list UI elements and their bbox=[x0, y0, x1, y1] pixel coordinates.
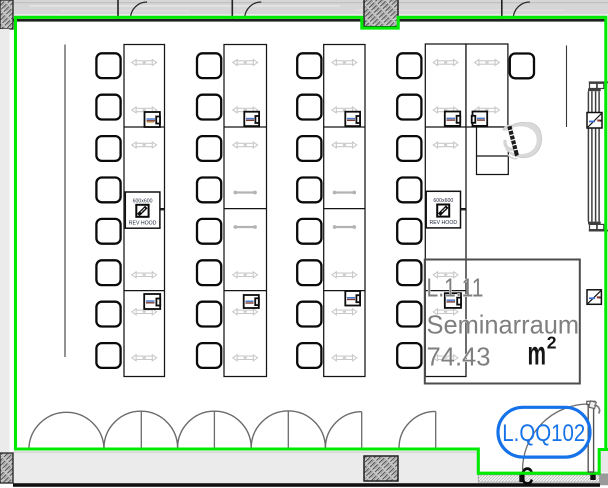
svg-text:L.1.11: L.1.11 bbox=[427, 273, 484, 303]
svg-text:L.QQ102: L.QQ102 bbox=[502, 420, 585, 447]
svg-text:2: 2 bbox=[547, 333, 557, 353]
svg-text:REV HOOD: REV HOOD bbox=[429, 220, 457, 226]
svg-text:600x600: 600x600 bbox=[133, 199, 153, 205]
svg-text:600x600: 600x600 bbox=[433, 198, 453, 204]
svg-text:m: m bbox=[528, 335, 547, 372]
svg-text:74.43: 74.43 bbox=[427, 342, 491, 372]
svg-text:REV HOOD: REV HOOD bbox=[129, 221, 157, 227]
